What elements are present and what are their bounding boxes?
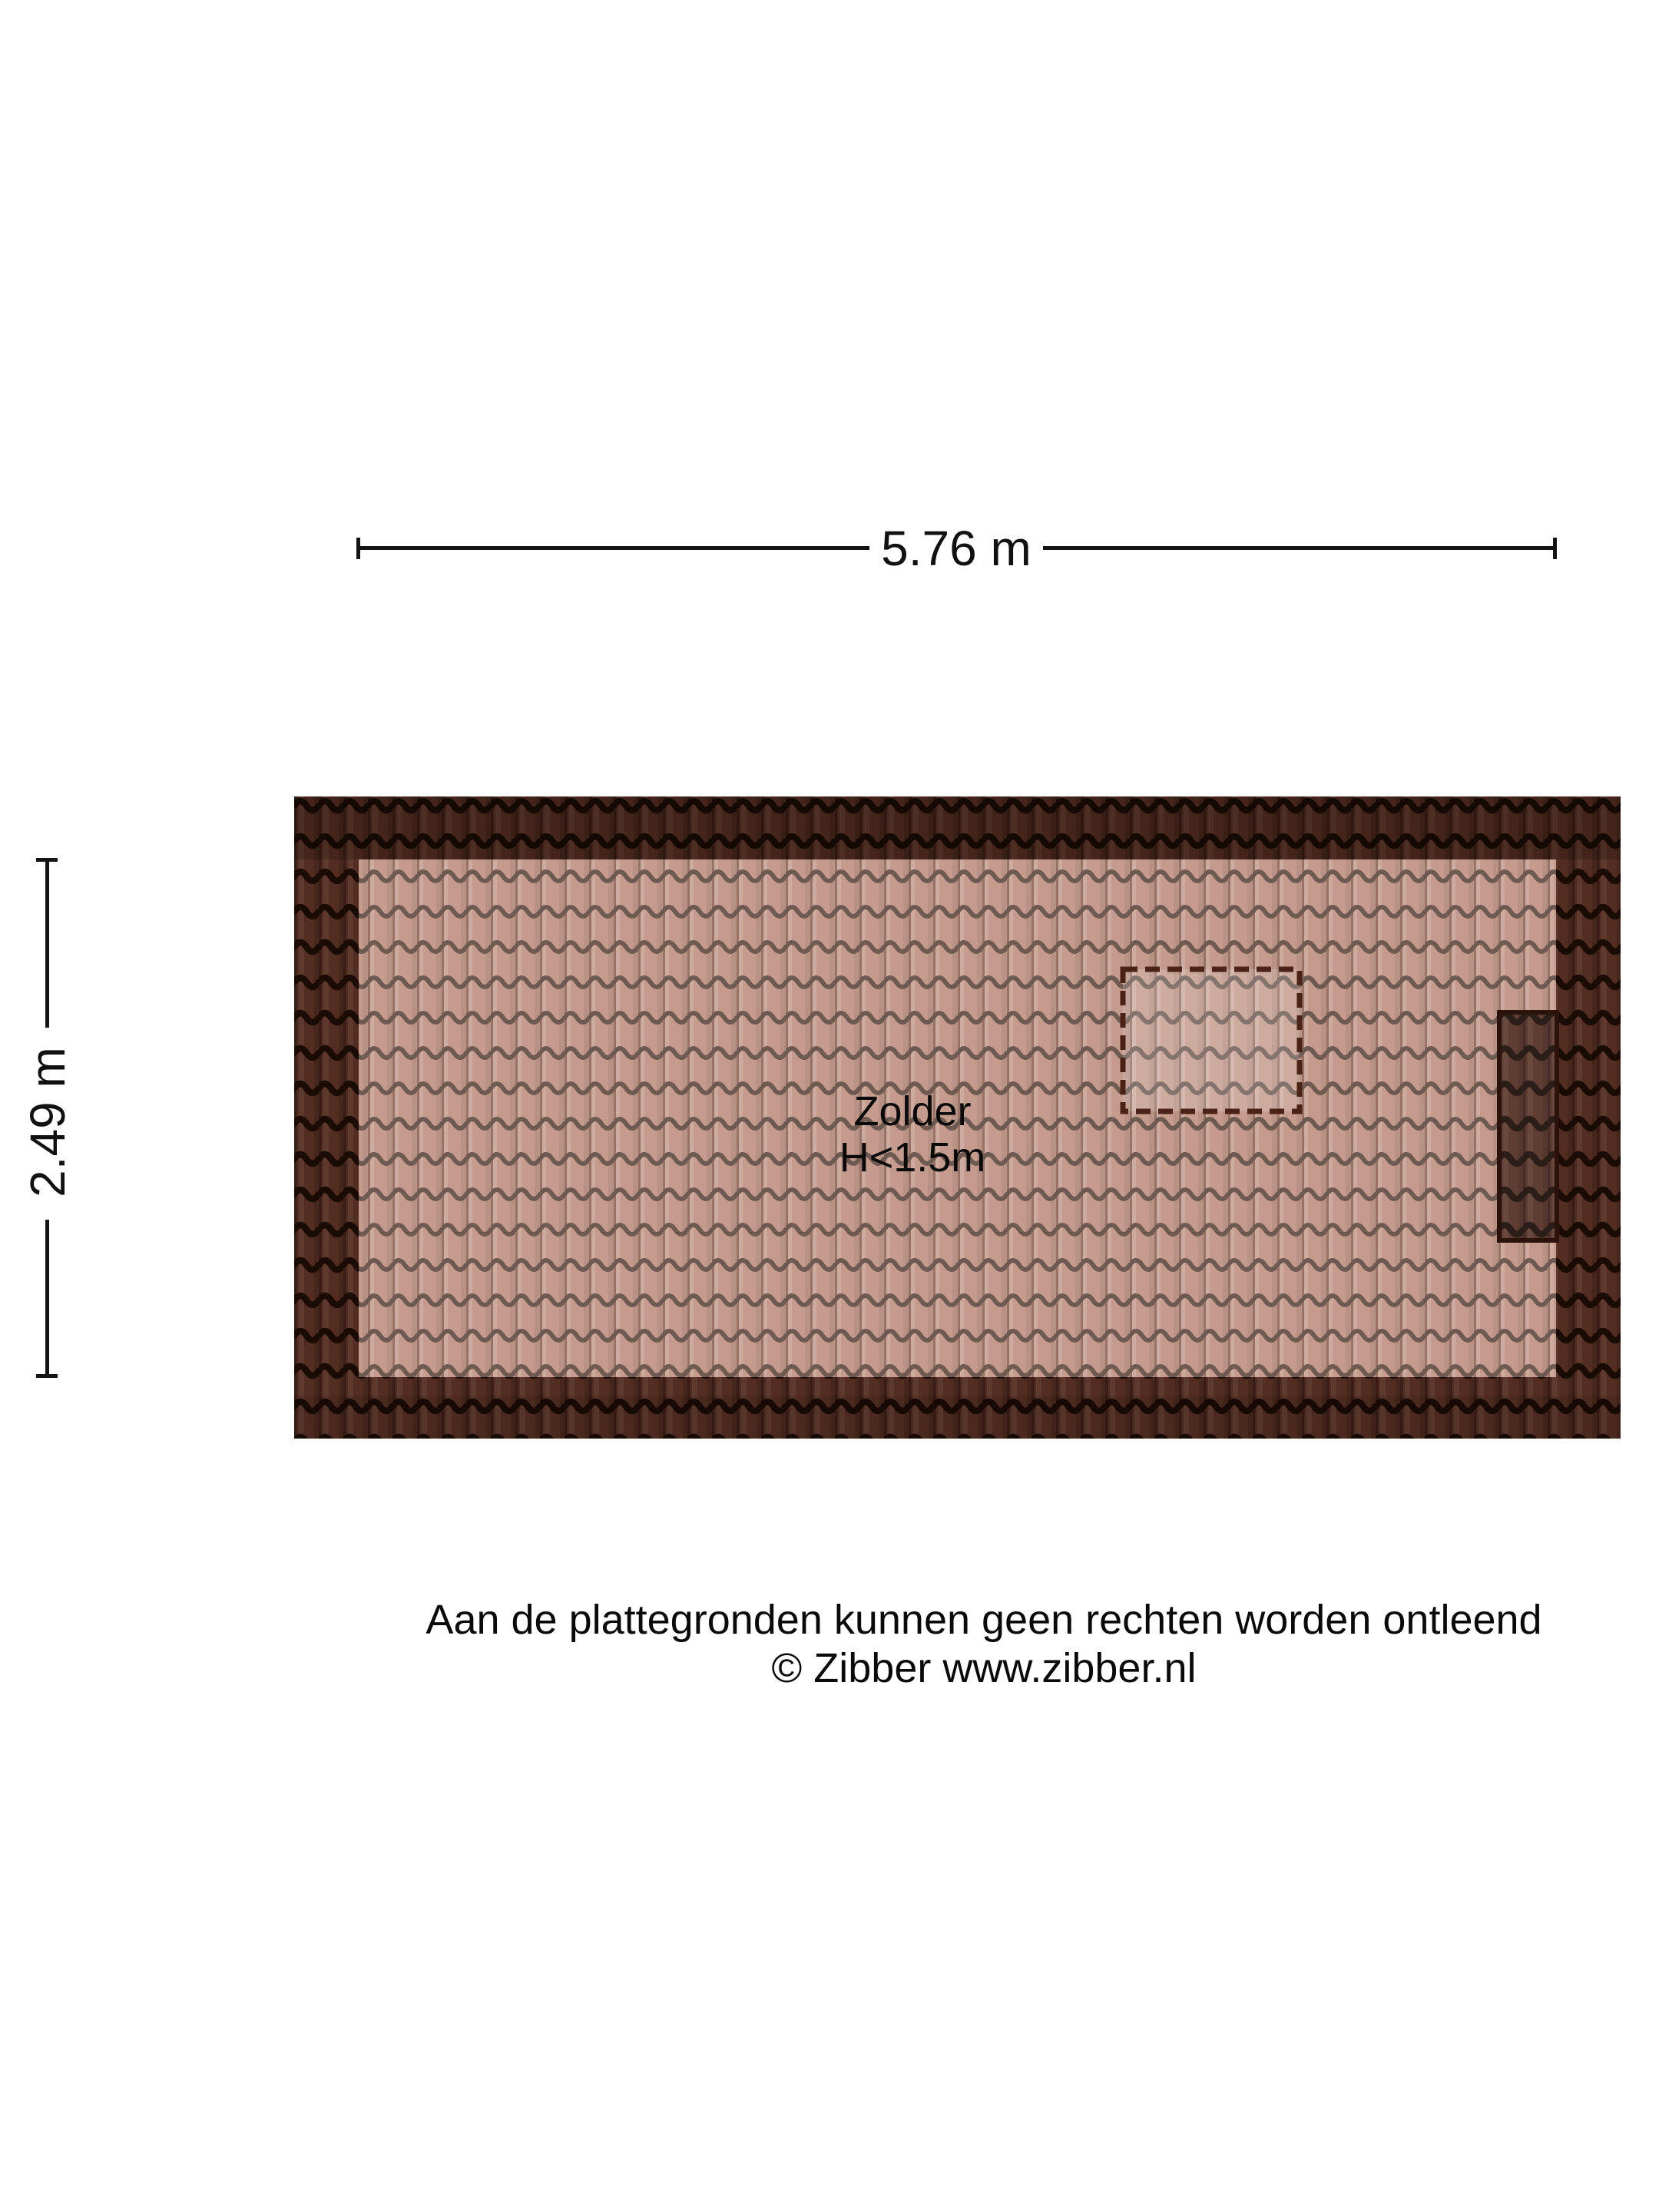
roof-ridge-shading [294,796,1621,859]
width-dimension-line-left [359,546,869,550]
height-dimension-tick-bottom [36,1374,58,1378]
height-dimension-line-top [45,859,49,1028]
skylight-fill [1123,969,1300,1111]
roof-bottom-shading [294,1396,1621,1439]
width-dimension-line-right [1043,546,1555,550]
skylight-dashed-outline [1123,969,1300,1111]
footer: Aan de plattegronden kunnen geen rechten… [426,1596,1541,1693]
chimney-recess [1499,1012,1557,1240]
room-name: Zolder [839,1088,986,1134]
height-dimension-line-bottom [45,1220,49,1376]
width-dimension-tick-left [356,538,360,559]
chimney-recess-border [1499,1012,1557,1240]
disclaimer-line: Aan de plattegronden kunnen geen rechten… [426,1596,1541,1644]
width-dimension-label: 5.76 m [881,520,1031,577]
room-label: Zolder H<1.5m [839,1088,986,1181]
copyright-line: © Zibber www.zibber.nl [426,1644,1541,1693]
height-dimension-label: 2.49 m [19,1047,76,1197]
height-dimension-tick-top [36,858,58,862]
width-dimension-tick-right [1553,538,1557,559]
room-height-note: H<1.5m [839,1134,986,1181]
